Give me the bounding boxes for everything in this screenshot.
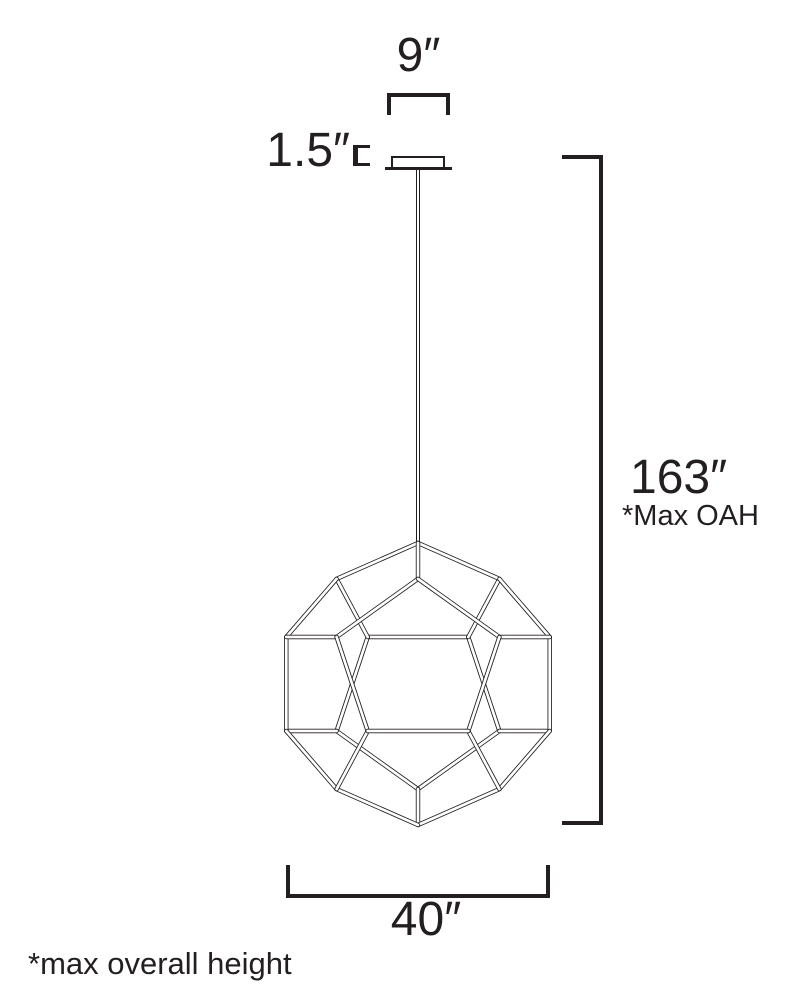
canopy-width-bracket <box>387 93 450 115</box>
overall-height-bracket <box>562 155 603 825</box>
pendant-fixture-wireframe <box>250 515 590 850</box>
canopy-height-bracket <box>353 145 370 166</box>
footnote-text: *max overall height <box>28 946 292 982</box>
canopy-height-label: 1.5″ <box>210 127 350 175</box>
overall-height-label: 163″ <box>630 454 727 502</box>
canopy-width-label: 9″ <box>387 32 450 80</box>
dimension-drawing: 9″ 1.5″ 163″ *Max OAH 40″ *max overall h… <box>0 0 800 1000</box>
overall-height-note: *Max OAH <box>622 502 759 531</box>
suspension-rod <box>416 170 420 544</box>
fixture-width-label: 40″ <box>286 896 566 944</box>
